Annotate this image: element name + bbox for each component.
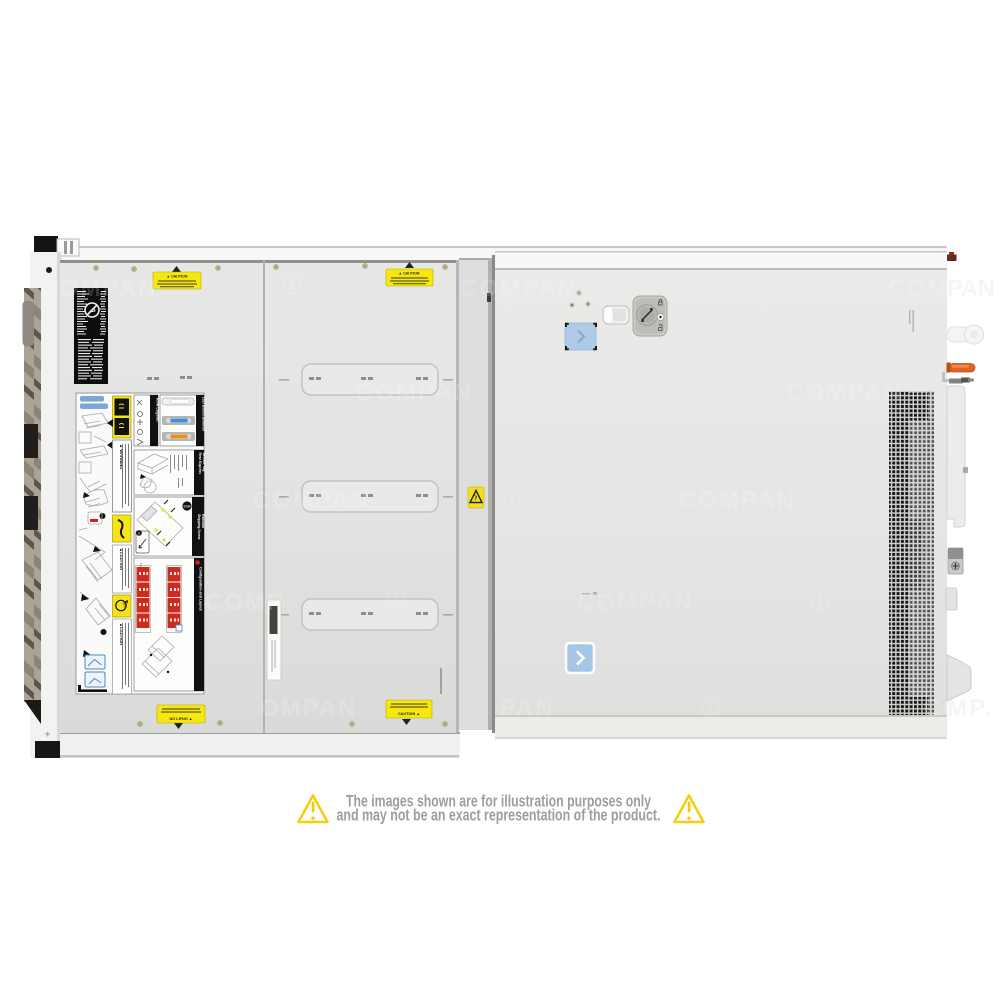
svg-text:LED Button Behavior: LED Button Behavior — [202, 397, 206, 432]
svg-text:Configuration and Layout: Configuration and Layout — [199, 567, 203, 612]
svg-text:ⓘ: ⓘ — [700, 274, 722, 297]
svg-text:Spin: Spin — [123, 601, 127, 608]
svg-text:COMP: COMP — [205, 589, 285, 616]
svg-text:Shipping Screw: Shipping Screw — [197, 514, 201, 540]
svg-text:PAN: PAN — [947, 275, 997, 302]
svg-text:ⓘ: ⓘ — [596, 380, 618, 403]
svg-text:COMPAN: COMPAN — [460, 275, 577, 302]
svg-text:▲ CAUTION: ▲ CAUTION — [399, 272, 420, 276]
svg-text:STOP: STOP — [183, 505, 190, 509]
svg-text:Service Tag: Service Tag — [202, 453, 206, 472]
svg-text:NO LIFNO ▲: NO LIFNO ▲ — [170, 717, 193, 721]
svg-text:1: 1 — [138, 531, 140, 535]
svg-text:▲CAUTION: ▲CAUTION — [119, 548, 124, 570]
svg-text:COMPAN: COMPAN — [253, 487, 370, 514]
svg-text:COMPAN: COMPAN — [679, 487, 796, 514]
svg-text:OMPAN: OMPAN — [60, 275, 158, 302]
svg-text:COMPAN: COMPAN — [786, 379, 903, 406]
svg-text:Removal: Removal — [201, 514, 205, 528]
svg-text:and may not be an exact repres: and may not be an exact representation o… — [337, 807, 661, 825]
svg-text:OMPAN: OMPAN — [260, 695, 358, 722]
svg-text:CAUTION ▲: CAUTION ▲ — [398, 712, 420, 716]
svg-text:ⓘ: ⓘ — [386, 588, 408, 611]
svg-text:▲CAUTION: ▲CAUTION — [119, 623, 124, 645]
svg-text:Rear Express: Rear Express — [198, 453, 202, 475]
svg-text:ⓘ: ⓘ — [282, 274, 304, 297]
svg-text:ⓘ: ⓘ — [700, 696, 722, 719]
svg-text:▲ CAUTION: ▲ CAUTION — [167, 275, 188, 279]
svg-text:▲ WARNING: ▲ WARNING — [119, 444, 124, 470]
svg-text:PAN: PAN — [500, 695, 555, 722]
svg-text:MP.: MP. — [947, 695, 993, 722]
svg-text:COMPAN: COMPAN — [577, 589, 694, 616]
svg-text:COMPAN: COMPAN — [356, 379, 473, 406]
svg-text:ⓘ: ⓘ — [502, 486, 524, 509]
svg-text:ⓘ: ⓘ — [810, 590, 832, 613]
